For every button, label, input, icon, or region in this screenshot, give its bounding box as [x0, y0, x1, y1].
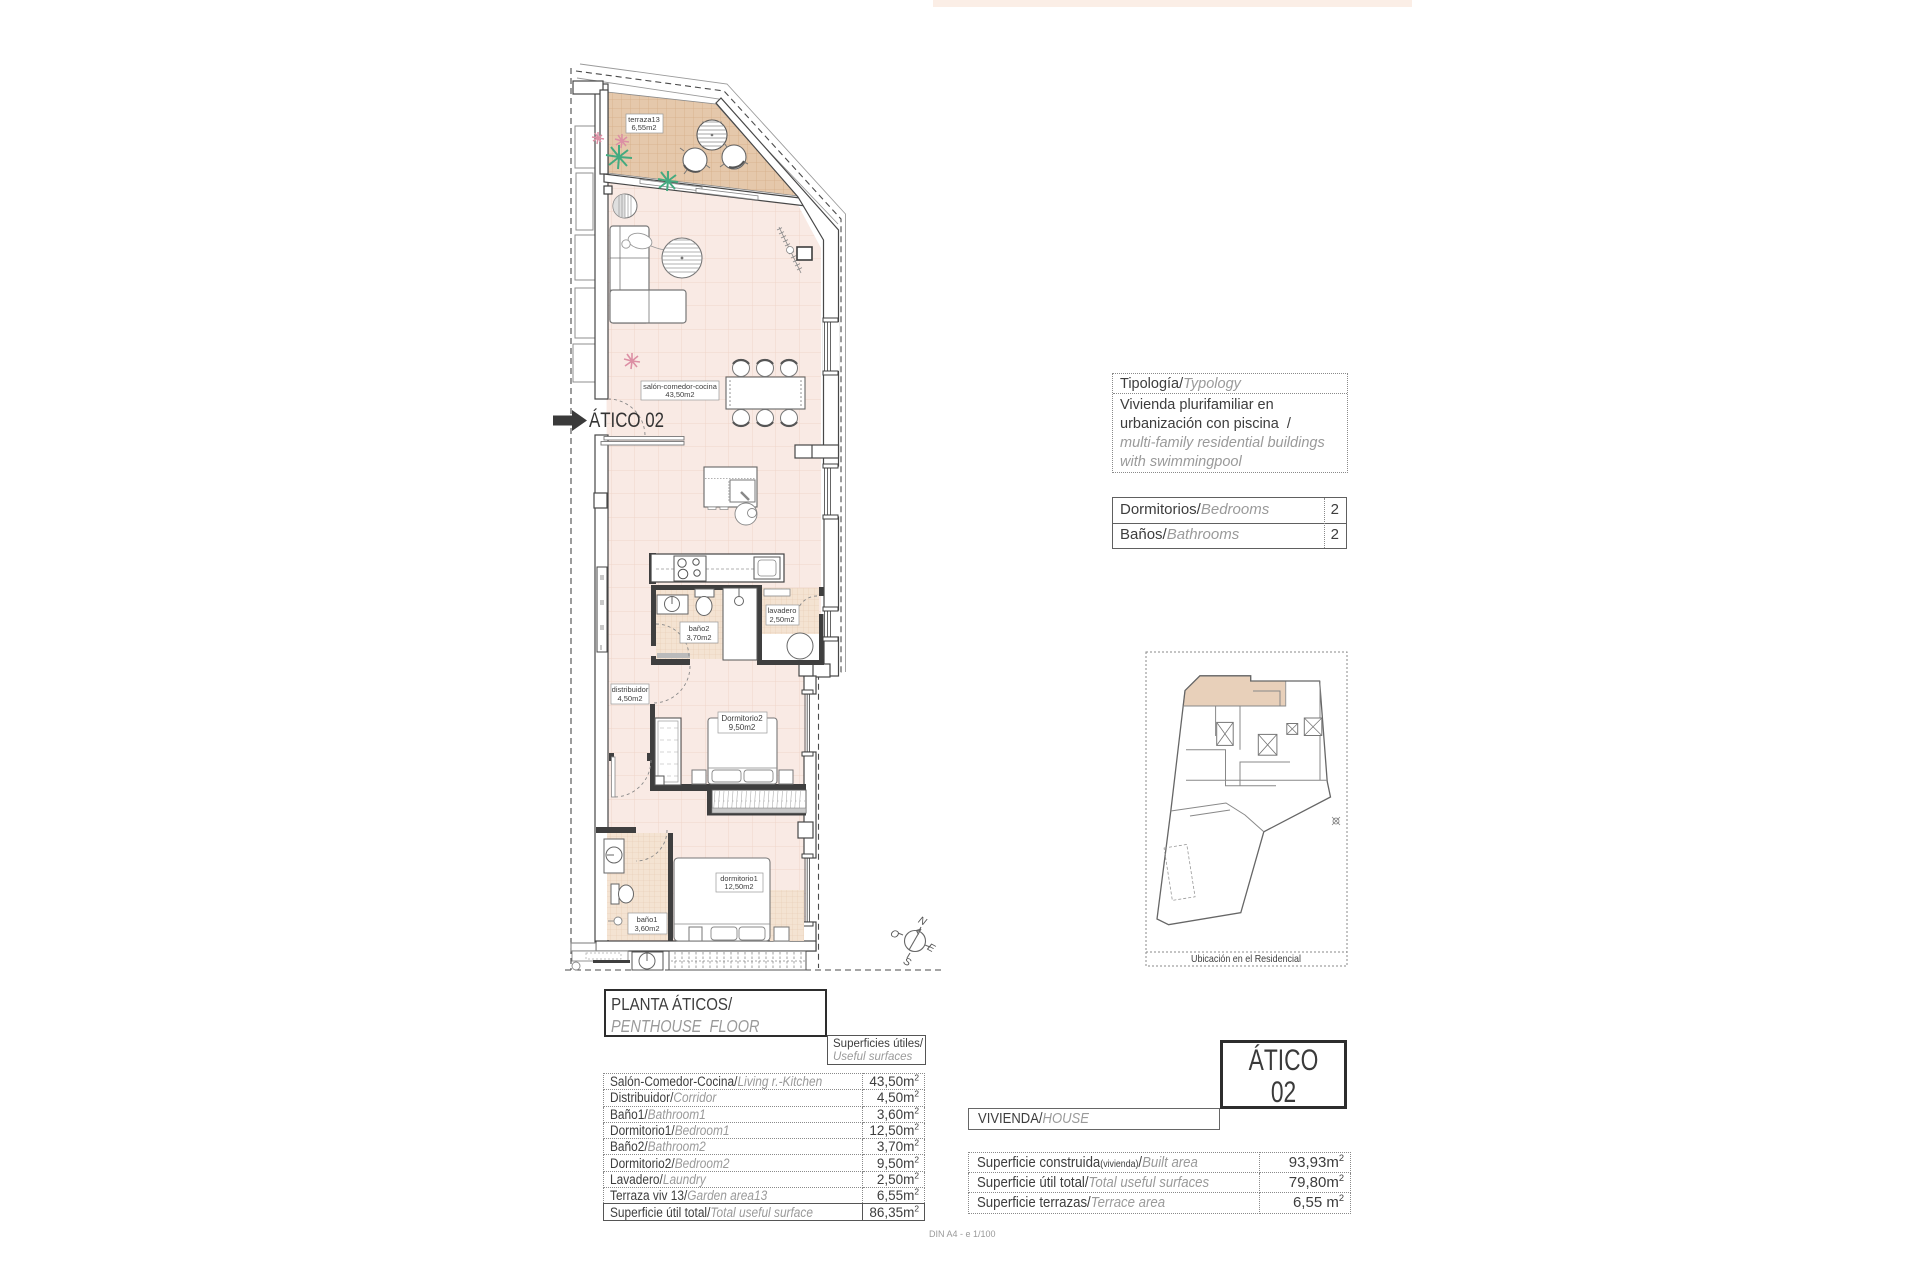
- svg-text:3,60m2: 3,60m2: [634, 924, 659, 933]
- svg-text:Ubicación en el Residencial: Ubicación en el Residencial: [1191, 953, 1301, 965]
- svg-text:S: S: [901, 955, 913, 969]
- svg-text:9,50m2: 9,50m2: [729, 723, 756, 732]
- svg-text:lavadero: lavadero: [768, 606, 797, 615]
- svg-text:distribuidor: distribuidor: [612, 685, 649, 694]
- svg-text:O: O: [888, 927, 901, 941]
- svg-text:N: N: [916, 914, 929, 928]
- svg-text:3,70m2: 3,70m2: [686, 633, 711, 642]
- svg-text:baño1: baño1: [637, 915, 658, 924]
- svg-text:43,50m2: 43,50m2: [665, 390, 694, 399]
- svg-text:Dormitorio2: Dormitorio2: [721, 714, 763, 723]
- svg-text:ÁTICO 02: ÁTICO 02: [589, 409, 664, 432]
- svg-text:6,55m2: 6,55m2: [631, 123, 656, 132]
- svg-text:12,50m2: 12,50m2: [724, 882, 753, 891]
- svg-text:4,50m2: 4,50m2: [617, 694, 642, 703]
- svg-text:2,50m2: 2,50m2: [769, 615, 794, 624]
- svg-text:E: E: [925, 941, 938, 955]
- svg-text:baño2: baño2: [689, 624, 710, 633]
